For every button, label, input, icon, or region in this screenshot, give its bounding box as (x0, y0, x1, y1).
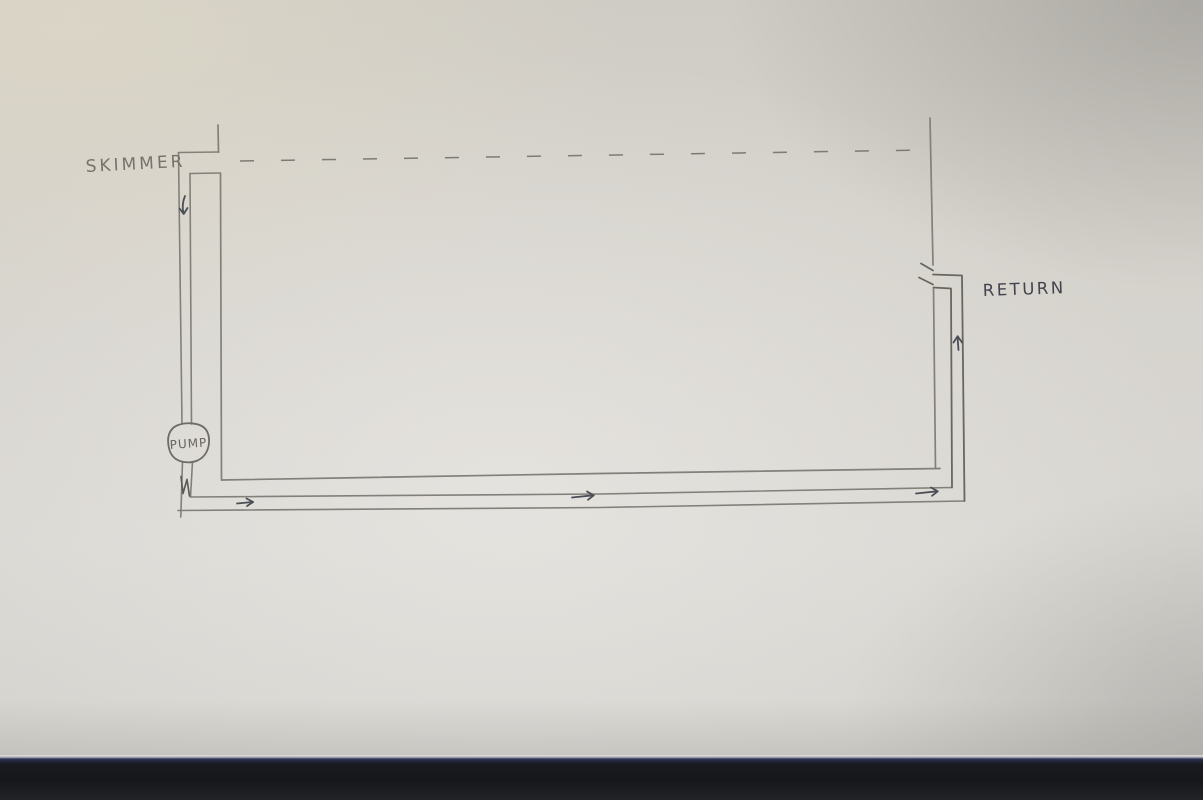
flow-arrow-down-skimmer-icon (180, 196, 188, 214)
plumbing-sketch: PUMP (0, 0, 1203, 800)
flow-arrow-up-return-icon (954, 336, 963, 350)
photo-of-paper-sketch: PUMP (0, 0, 1203, 800)
flow-arrow-right-left-icon (237, 499, 253, 507)
bottom-pipe (178, 488, 965, 511)
tank-bottom (222, 469, 941, 481)
return-wall-stub-upper (921, 264, 933, 271)
return-label: RETURN (982, 278, 1065, 300)
paper-edge-shadow (0, 700, 1203, 757)
water-level-dashed-line (240, 150, 925, 161)
return-pipe (919, 264, 965, 502)
skimmer-label: SKIMMER (85, 152, 186, 177)
bottom-pipe-lower-line (178, 501, 965, 511)
tank-right-wall-upper (930, 118, 933, 265)
return-pipe-outer (933, 275, 965, 502)
tank-right-wall-lower (934, 288, 936, 469)
flow-arrow-right-middle-icon (572, 492, 594, 500)
tank-left-wall (221, 174, 222, 481)
pump-symbol: PUMP (168, 423, 209, 462)
skimmer-pipe-outer (179, 153, 183, 425)
pump-outlet-inner (191, 462, 193, 498)
table-surface (0, 755, 1203, 800)
tank-outline (218, 118, 940, 480)
skimmer-pipe-inner (190, 174, 192, 425)
skimmer-inner-inlet (190, 173, 221, 174)
tank-left-wall-stub (218, 125, 219, 152)
pump-label: PUMP (169, 435, 207, 452)
return-wall-stub-lower (919, 278, 933, 285)
return-pipe-inner (934, 288, 953, 488)
flow-arrows (180, 196, 963, 506)
bottom-pipe-upper-line (191, 488, 953, 498)
